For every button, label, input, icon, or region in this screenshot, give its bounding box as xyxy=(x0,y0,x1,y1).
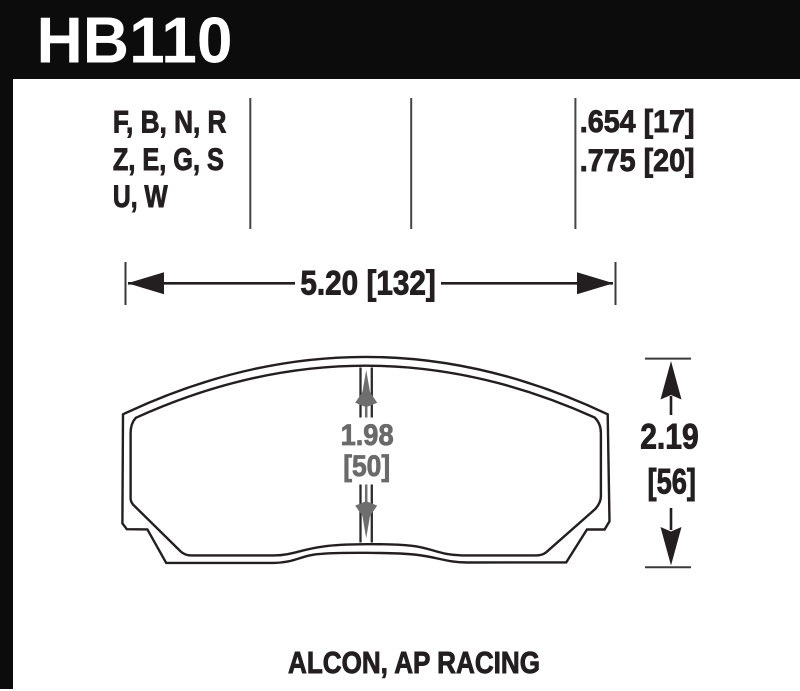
svg-text:.654 [17]: .654 [17] xyxy=(580,104,695,139)
svg-text:[50]: [50] xyxy=(343,450,390,483)
svg-text:5.20 [132]: 5.20 [132] xyxy=(300,264,435,302)
svg-text:1.98: 1.98 xyxy=(341,419,394,452)
svg-text:2.19: 2.19 xyxy=(640,417,699,456)
svg-text:U, W: U, W xyxy=(113,179,168,214)
svg-text:HB110: HB110 xyxy=(37,4,233,77)
svg-text:Z, E, G, S: Z, E, G, S xyxy=(113,142,224,177)
svg-text:.775 [20]: .775 [20] xyxy=(580,143,695,178)
svg-text:F, B, N, R: F, B, N, R xyxy=(113,104,227,139)
svg-text:ALCON, AP RACING: ALCON, AP RACING xyxy=(288,645,540,680)
svg-text:[56]: [56] xyxy=(648,461,697,501)
